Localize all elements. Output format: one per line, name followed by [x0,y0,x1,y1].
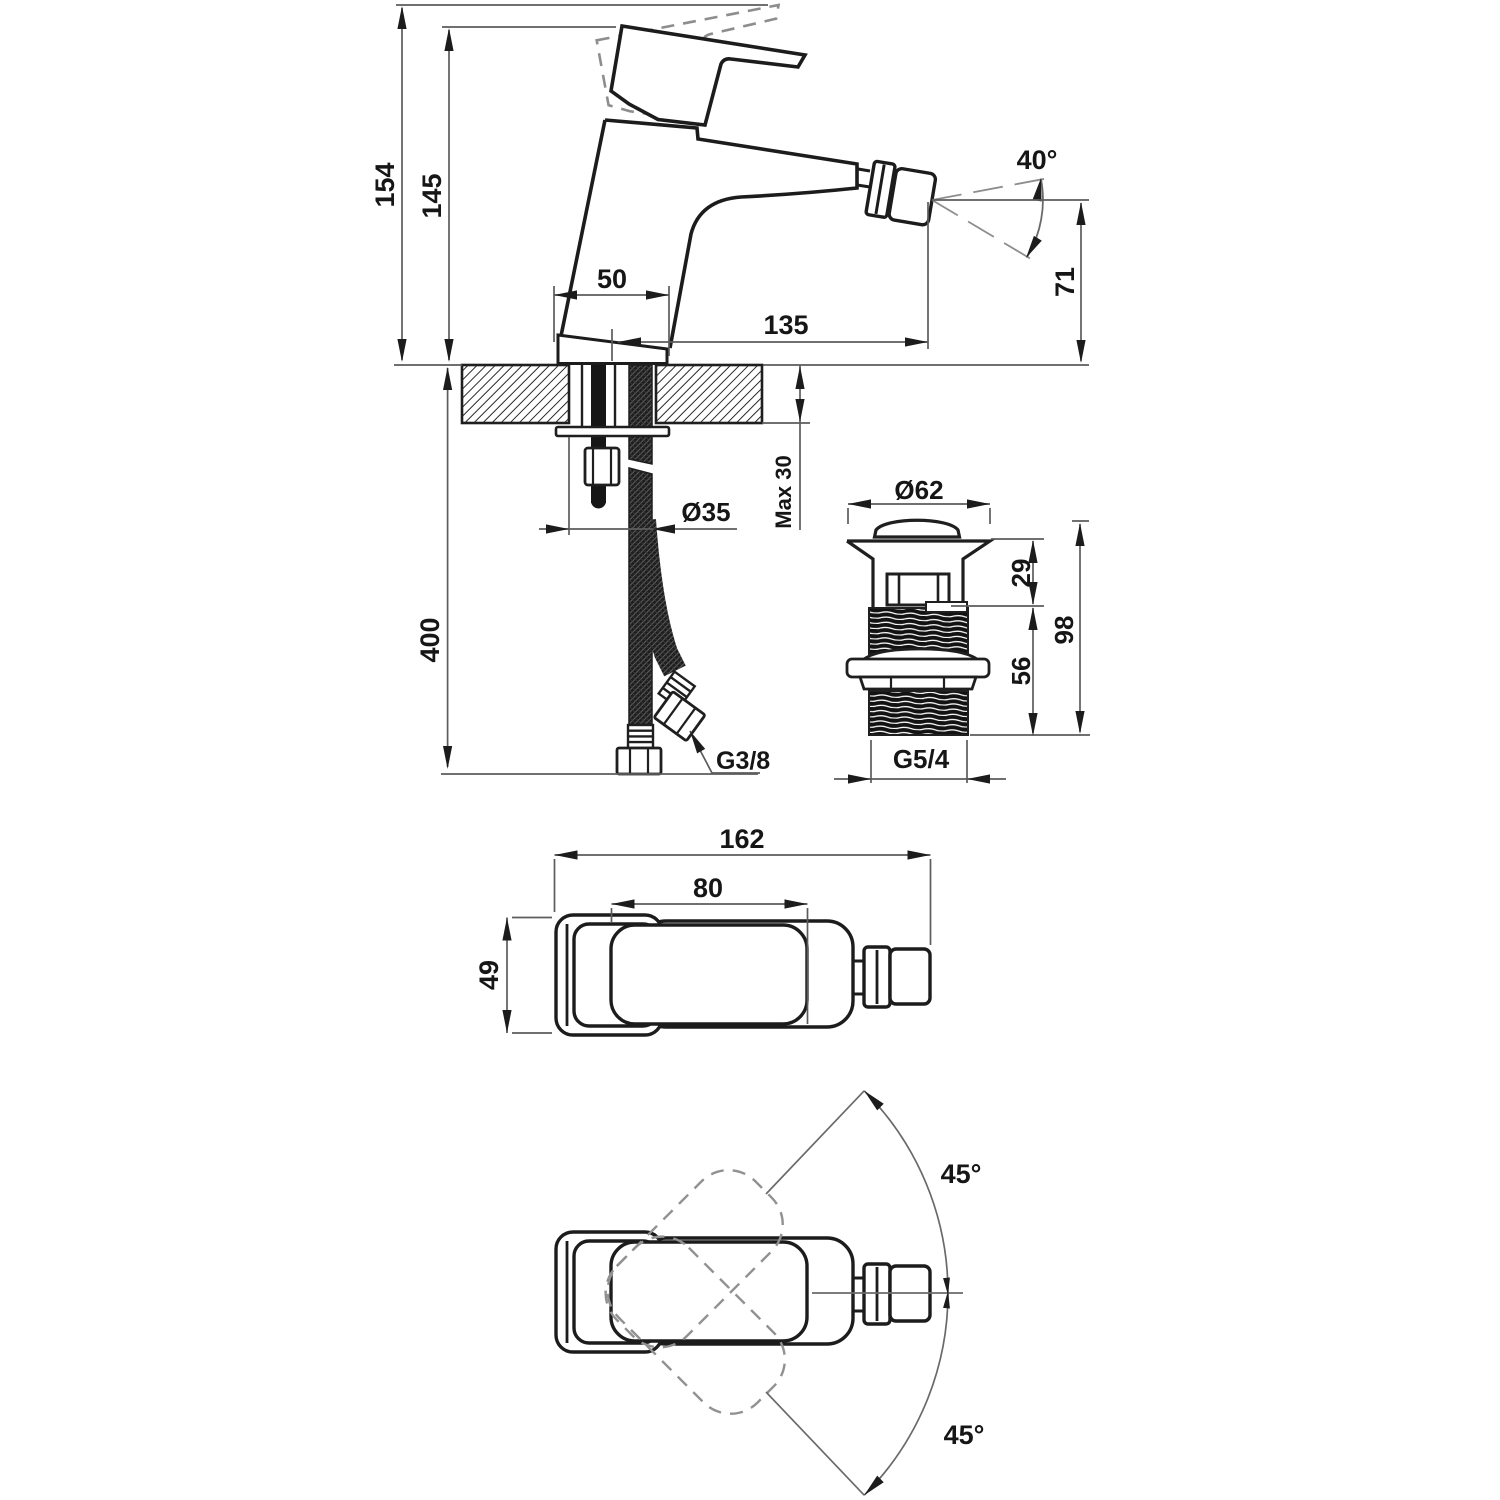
svg-text:45°: 45° [944,1420,985,1450]
svg-text:45°: 45° [941,1159,982,1189]
svg-text:71: 71 [1050,267,1080,297]
svg-text:Ø35: Ø35 [681,497,730,527]
svg-text:400: 400 [415,617,445,662]
svg-text:154: 154 [370,162,400,207]
svg-text:80: 80 [693,873,723,903]
svg-text:135: 135 [763,310,808,340]
svg-text:50: 50 [597,264,627,294]
svg-text:29: 29 [1006,559,1036,588]
svg-text:Ø62: Ø62 [894,475,943,505]
svg-text:Max 30: Max 30 [771,455,796,528]
svg-text:98: 98 [1049,616,1079,645]
svg-text:162: 162 [719,824,764,854]
svg-text:49: 49 [474,960,504,990]
svg-text:G5/4: G5/4 [893,744,950,774]
svg-text:145: 145 [417,173,447,218]
svg-text:40°: 40° [1017,145,1058,175]
svg-text:56: 56 [1006,657,1036,686]
svg-text:G3/8: G3/8 [716,747,770,775]
